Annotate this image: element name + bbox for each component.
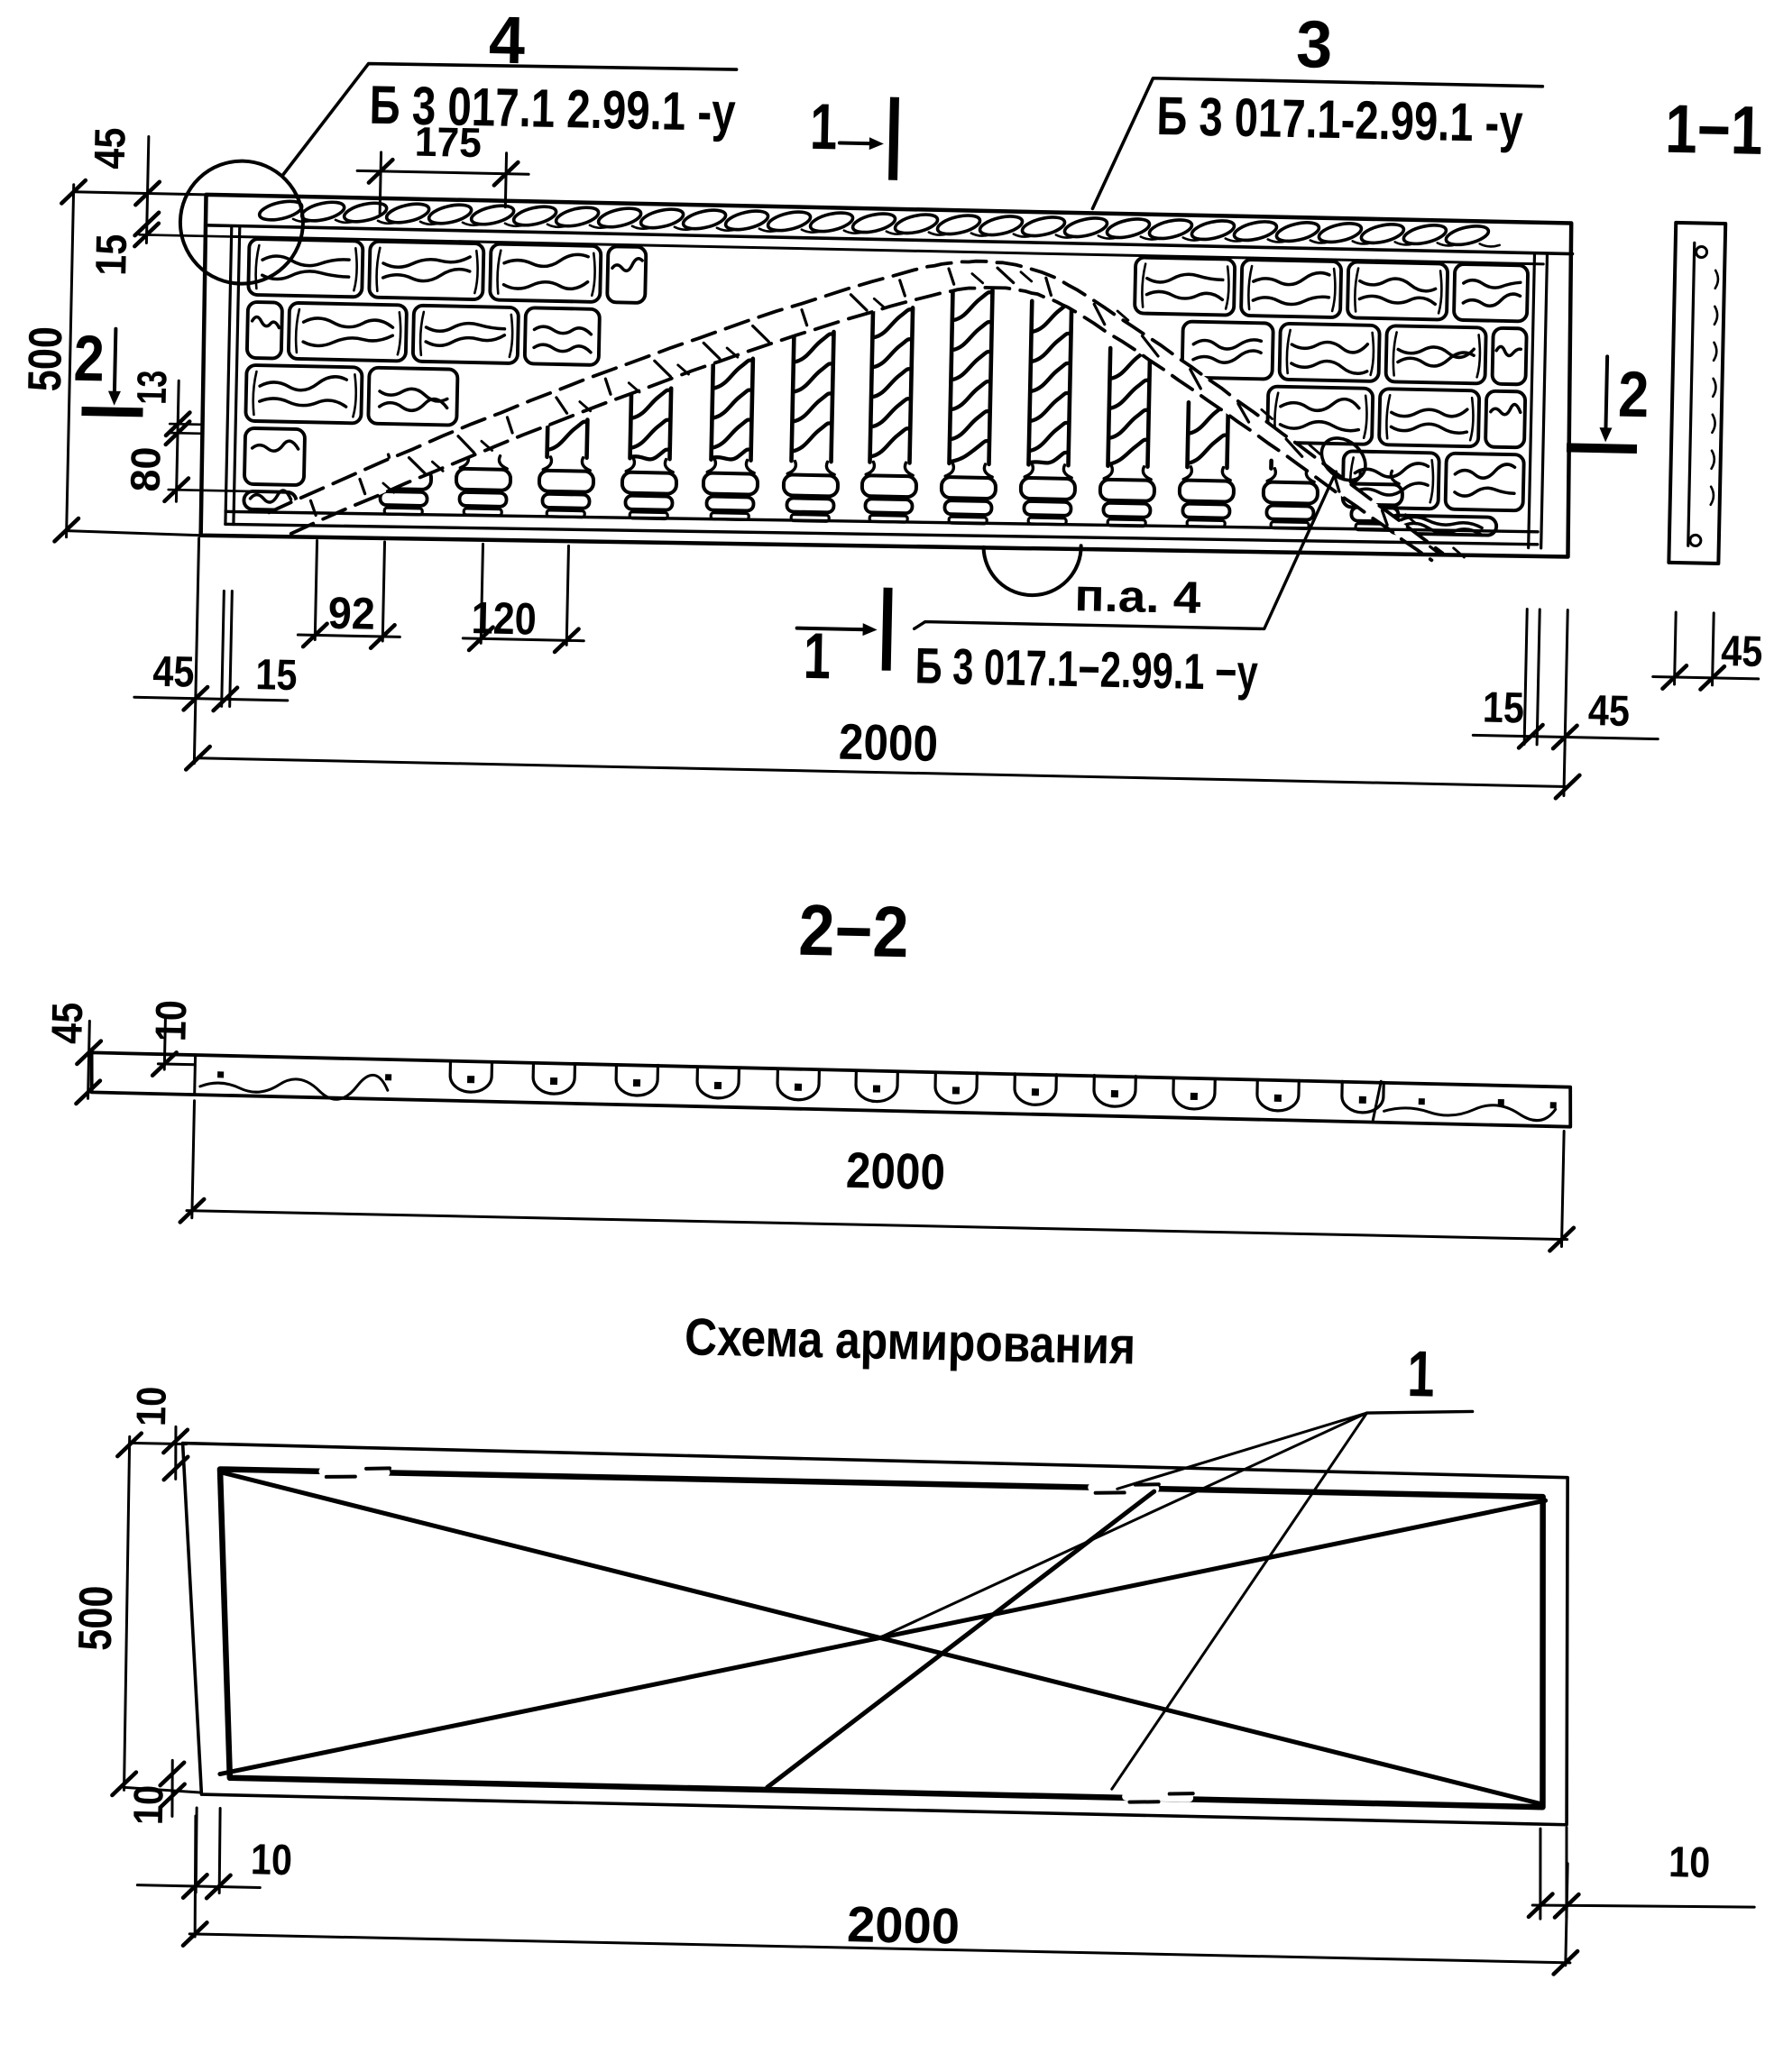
svg-text:Б 3 017.1−2.99.1 −у: Б 3 017.1−2.99.1 −у [915, 637, 1258, 701]
svg-text:15: 15 [255, 651, 298, 700]
svg-text:2: 2 [73, 323, 106, 396]
svg-text:2: 2 [1617, 359, 1650, 432]
svg-text:175: 175 [414, 118, 482, 167]
svg-text:1: 1 [809, 91, 838, 164]
svg-text:1: 1 [803, 620, 832, 693]
svg-text:2000: 2000 [838, 713, 938, 772]
svg-text:Схема армирования: Схема армирования [684, 1307, 1135, 1375]
svg-text:45: 45 [1587, 687, 1630, 736]
svg-text:4: 4 [488, 2, 526, 78]
svg-text:15: 15 [87, 234, 136, 276]
svg-text:2−2: 2−2 [798, 890, 910, 973]
svg-text:45: 45 [1721, 628, 1763, 676]
svg-text:120: 120 [471, 592, 537, 644]
svg-text:10: 10 [147, 1000, 196, 1042]
svg-text:3: 3 [1295, 6, 1333, 82]
svg-text:10: 10 [250, 1836, 292, 1884]
svg-text:2000: 2000 [845, 1141, 945, 1200]
svg-text:Б 3 017.1-2.99.1 -у: Б 3 017.1-2.99.1 -у [1156, 86, 1524, 153]
svg-text:45: 45 [43, 1002, 92, 1044]
svg-text:92: 92 [327, 588, 375, 639]
svg-text:1: 1 [1407, 1338, 1436, 1411]
svg-text:10: 10 [127, 1386, 175, 1426]
svg-text:13: 13 [128, 370, 176, 405]
svg-text:45: 45 [87, 127, 135, 170]
svg-text:45: 45 [152, 648, 195, 697]
svg-text:500: 500 [69, 1585, 123, 1651]
svg-text:15: 15 [1482, 684, 1524, 733]
svg-text:2000: 2000 [846, 1895, 960, 1955]
svg-text:1−1: 1−1 [1665, 91, 1764, 170]
svg-text:80: 80 [122, 446, 170, 492]
svg-text:10: 10 [124, 1784, 172, 1825]
svg-text:500: 500 [19, 326, 72, 392]
svg-text:п.а. 4: п.а. 4 [1074, 570, 1201, 623]
svg-text:10: 10 [1668, 1838, 1711, 1887]
